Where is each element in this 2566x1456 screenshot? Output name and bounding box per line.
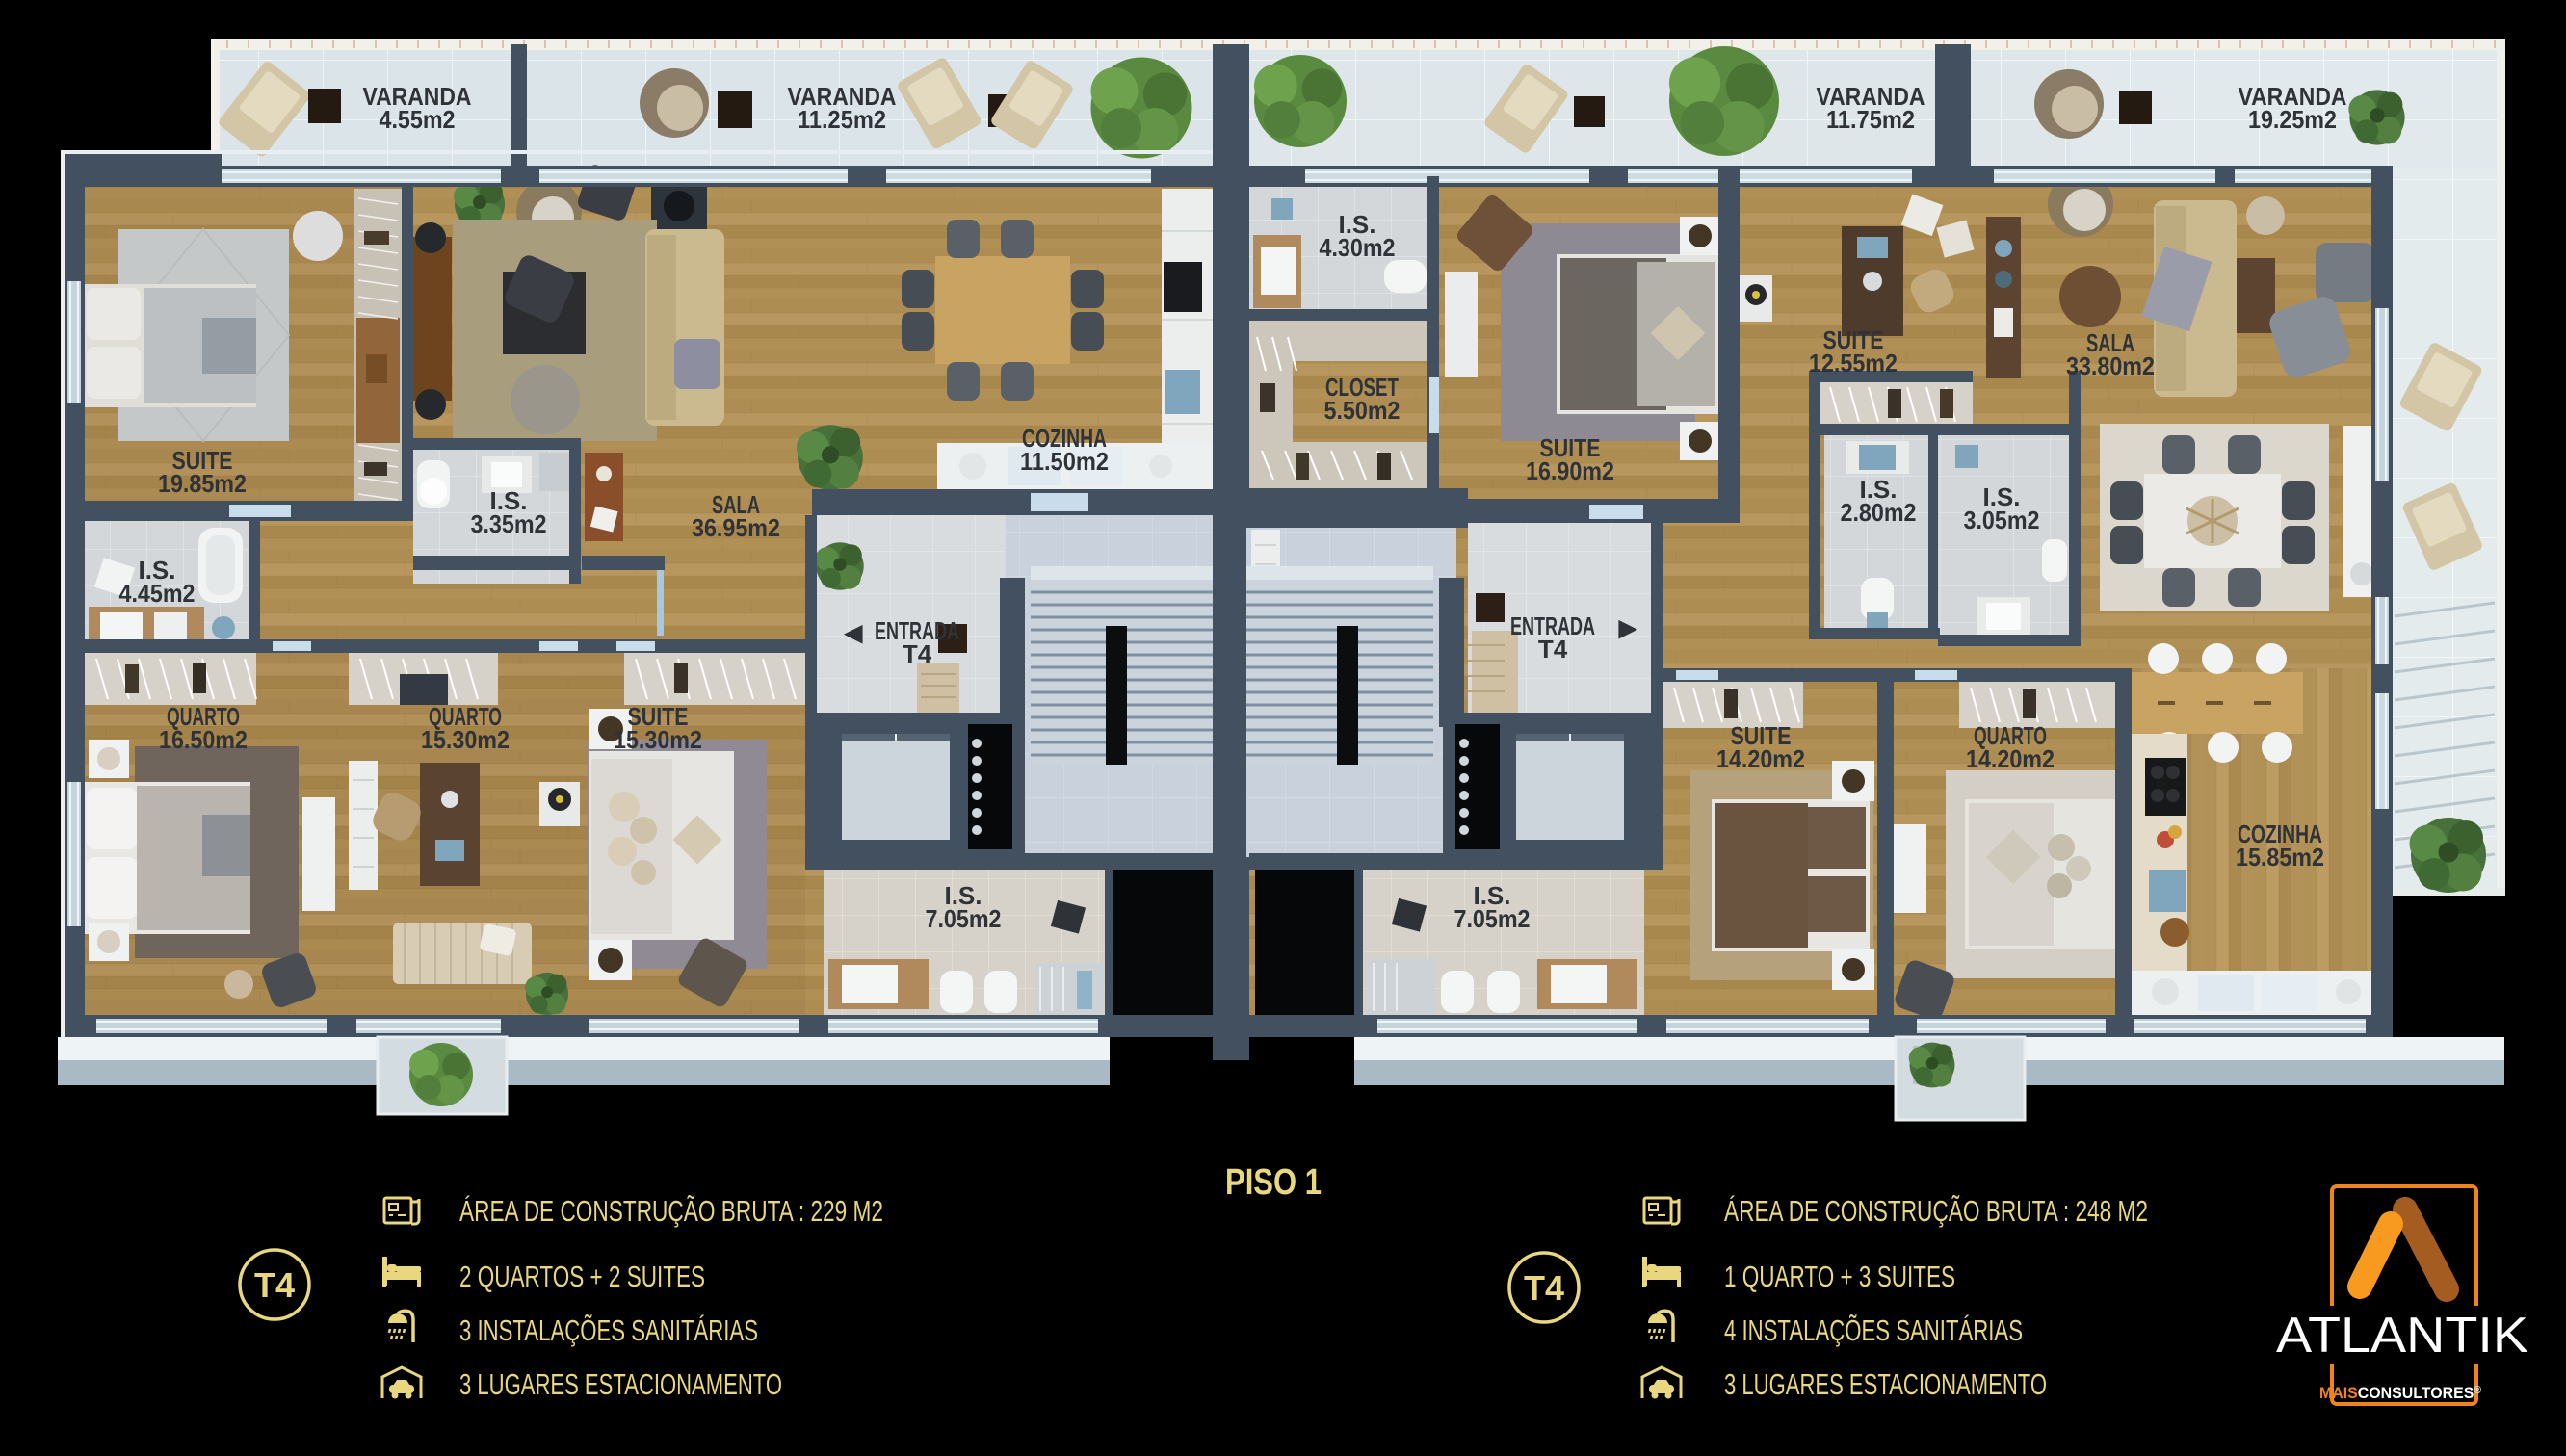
svg-text:T4: T4	[254, 1265, 295, 1305]
svg-text:ÁREA DE CONSTRUÇÃO BRUTA : 24: ÁREA DE CONSTRUÇÃO BRUTA : 248 M2	[1724, 1194, 2148, 1228]
svg-text:PISO 1: PISO 1	[1225, 1162, 1322, 1203]
svg-text:33.80m2: 33.80m2	[2066, 351, 2155, 380]
svg-text:7.05m2: 7.05m2	[1454, 904, 1531, 933]
svg-text:3 INSTALAÇÕES SANITÁRIAS: 3 INSTALAÇÕES SANITÁRIAS	[459, 1313, 758, 1347]
svg-text:3 LUGARES ESTACIONAMENTO: 3 LUGARES ESTACIONAMENTO	[1724, 1367, 2047, 1401]
svg-text:3 LUGARES ESTACIONAMENTO: 3 LUGARES ESTACIONAMENTO	[459, 1367, 782, 1401]
svg-text:16.90m2: 16.90m2	[1526, 456, 1614, 485]
svg-text:4.45m2: 4.45m2	[119, 579, 196, 608]
svg-text:5.50m2: 5.50m2	[1324, 396, 1401, 425]
svg-text:4 INSTALAÇÕES SANITÁRIAS: 4 INSTALAÇÕES SANITÁRIAS	[1724, 1313, 2023, 1347]
svg-text:15.85m2: 15.85m2	[2236, 843, 2324, 871]
svg-text:7.05m2: 7.05m2	[926, 904, 1002, 933]
svg-text:14.20m2: 14.20m2	[1966, 744, 2055, 773]
svg-text:11.75m2: 11.75m2	[1826, 105, 1915, 134]
svg-text:2.80m2: 2.80m2	[1841, 498, 1917, 527]
svg-text:4.30m2: 4.30m2	[1320, 233, 1396, 262]
svg-text:15.30m2: 15.30m2	[614, 725, 702, 754]
svg-text:11.50m2: 11.50m2	[1020, 447, 1109, 476]
svg-text:◀: ◀	[844, 620, 863, 646]
svg-text:ÁREA DE CONSTRUÇÃO BRUTA : 22: ÁREA DE CONSTRUÇÃO BRUTA : 229 M2	[459, 1194, 883, 1228]
svg-text:2 QUARTOS + 2 SUITES: 2 QUARTOS + 2 SUITES	[459, 1260, 705, 1293]
svg-text:12.55m2: 12.55m2	[1809, 349, 1898, 377]
svg-text:14.20m2: 14.20m2	[1716, 744, 1805, 773]
svg-text:11.25m2: 11.25m2	[798, 105, 886, 134]
svg-text:4.55m2: 4.55m2	[380, 105, 456, 134]
svg-text:T4: T4	[1538, 635, 1568, 663]
svg-text:1 QUARTO + 3 SUITES: 1 QUARTO + 3 SUITES	[1724, 1260, 1955, 1293]
svg-text:16.50m2: 16.50m2	[159, 725, 248, 754]
svg-text:MAISCONSULTORES®: MAISCONSULTORES®	[2319, 1384, 2481, 1402]
svg-text:3.35m2: 3.35m2	[471, 509, 547, 538]
svg-text:▶: ▶	[1618, 615, 1638, 641]
svg-text:ATLANTIK: ATLANTIK	[2276, 1308, 2528, 1364]
svg-text:T4: T4	[1524, 1268, 1564, 1308]
svg-text:19.85m2: 19.85m2	[158, 469, 247, 498]
svg-text:36.95m2: 36.95m2	[692, 513, 780, 542]
svg-text:T4: T4	[903, 639, 932, 668]
svg-text:19.25m2: 19.25m2	[2248, 105, 2337, 134]
svg-text:3.05m2: 3.05m2	[1964, 506, 2040, 534]
svg-text:15.30m2: 15.30m2	[421, 725, 510, 754]
